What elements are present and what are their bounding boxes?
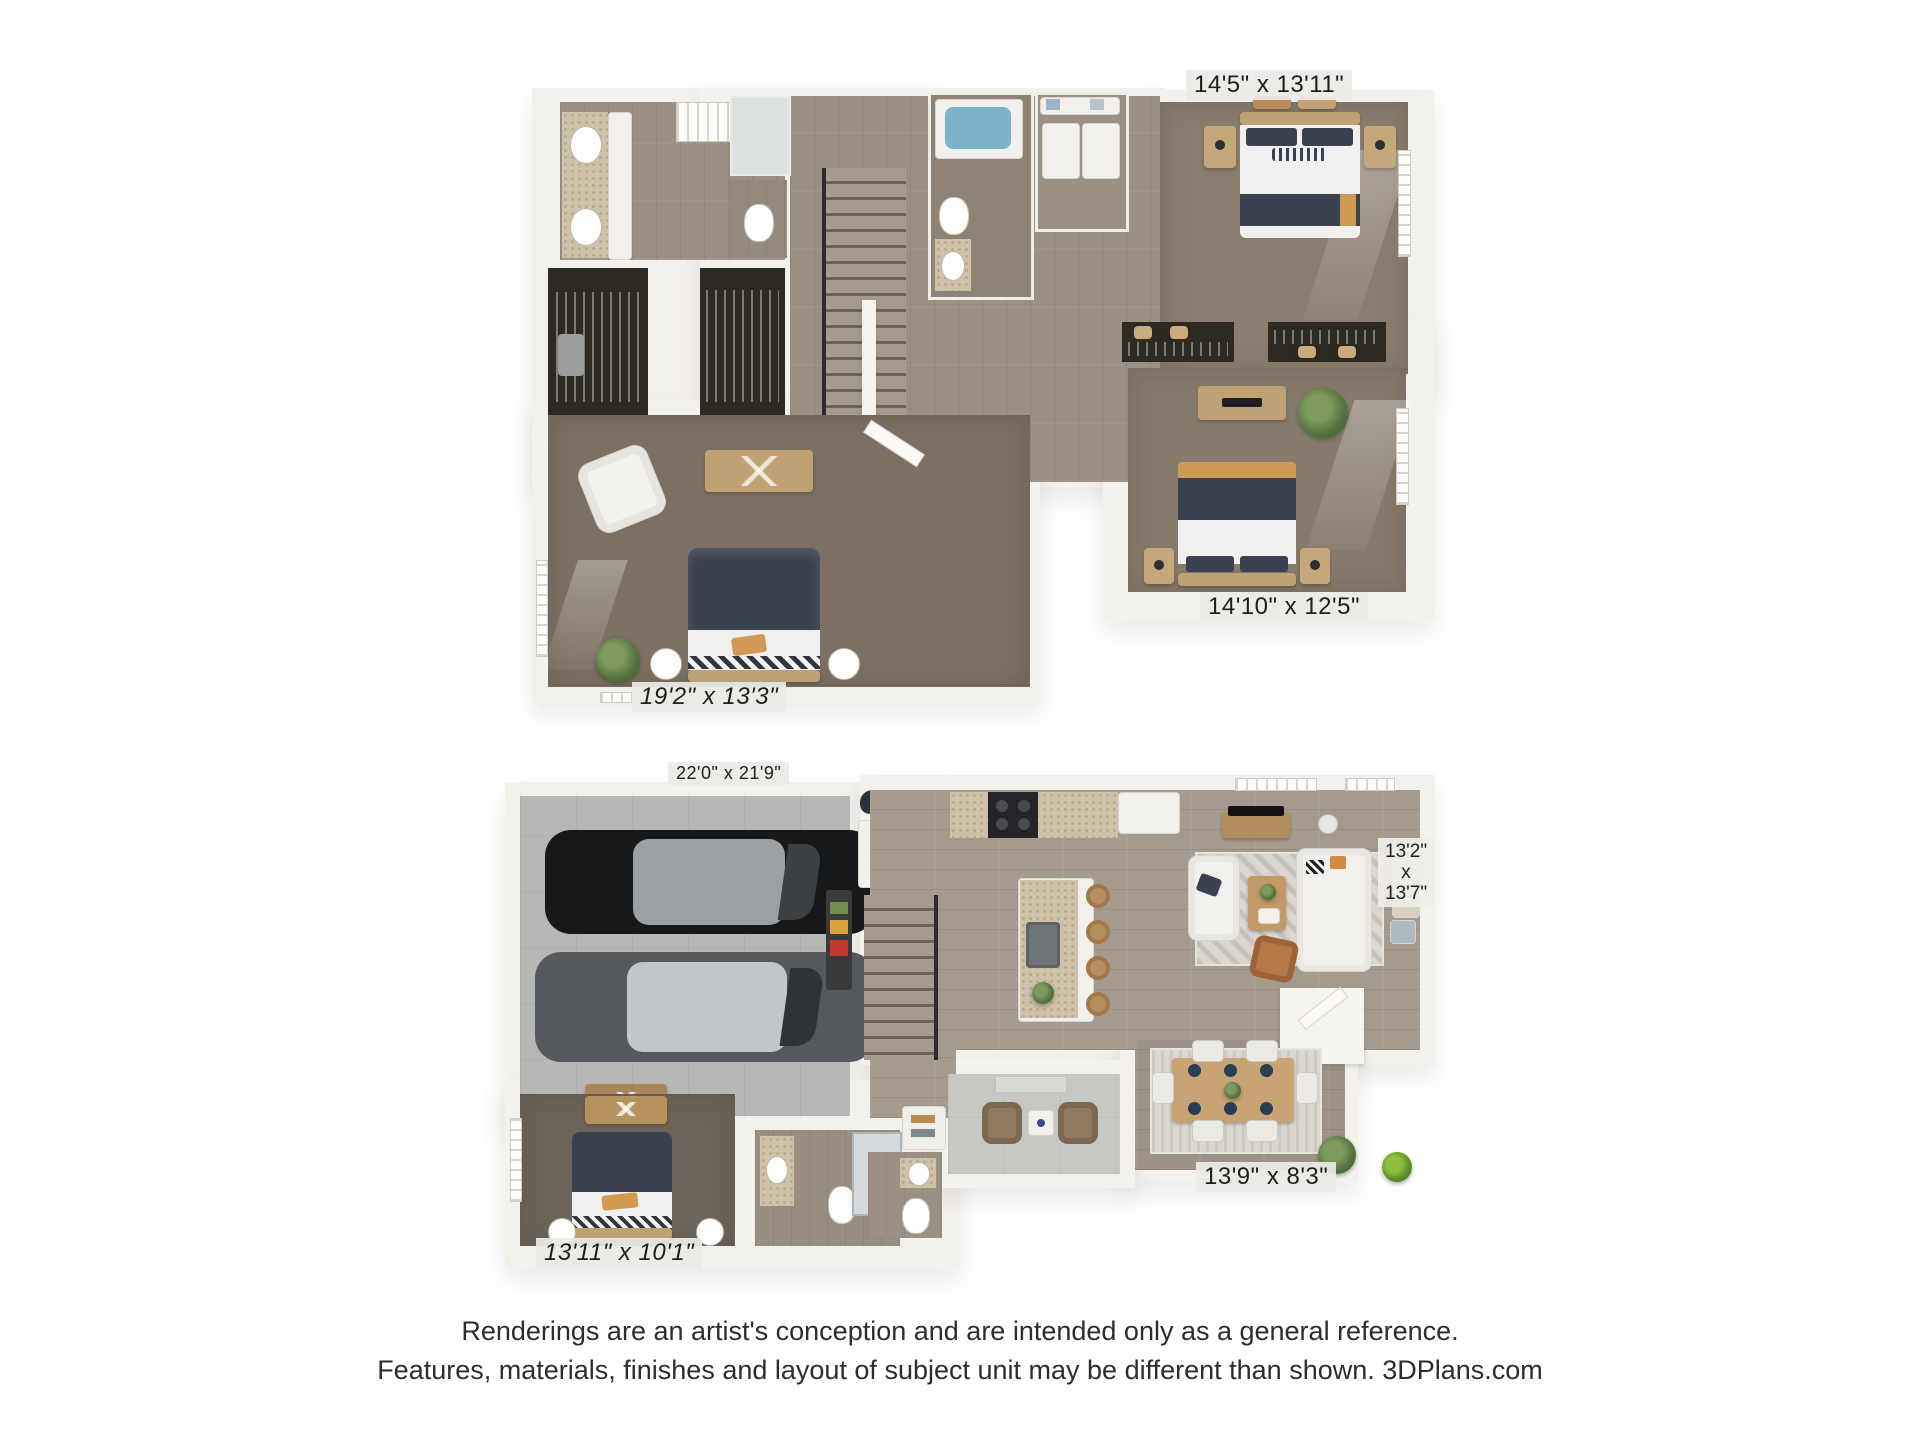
bed2-pillow-right xyxy=(1240,556,1288,572)
island-stool-3 xyxy=(1086,956,1110,980)
bedroom2-dresser xyxy=(1198,386,1286,420)
master-bed-footboard xyxy=(688,670,820,682)
bedroom2-closet-2 xyxy=(1268,322,1386,362)
living-window-top-2 xyxy=(1345,778,1395,791)
burner-1 xyxy=(996,800,1008,812)
car-silver xyxy=(535,952,875,1062)
plate-3 xyxy=(1260,1064,1273,1077)
walkin-closet-2 xyxy=(700,268,785,426)
bedroom2-bed xyxy=(1178,462,1296,586)
closet-strip1-box2 xyxy=(1170,326,1188,339)
burner-3 xyxy=(996,818,1008,830)
zebra-pillow xyxy=(1306,860,1324,874)
closet-strip2-clothes xyxy=(1274,330,1380,344)
master-bed-checker-pillows xyxy=(688,656,820,669)
dining-chair-left xyxy=(1152,1072,1174,1104)
bedroom2-closet-1 xyxy=(1122,322,1234,362)
toilet-upper-wc xyxy=(744,204,774,242)
dim-label-living-x: x xyxy=(1385,862,1427,883)
bathtub-water xyxy=(945,107,1011,149)
pantry-shelf-1 xyxy=(911,1115,935,1123)
garage-shelf-box-yellow xyxy=(830,920,848,934)
bed2-pillow-left xyxy=(1186,556,1234,572)
island-stool-2 xyxy=(1086,920,1110,944)
bed1-accent-pillow xyxy=(1272,148,1328,161)
lower-bed-duvet xyxy=(572,1132,672,1192)
orange-pillow xyxy=(1330,856,1346,869)
dryer xyxy=(1082,123,1120,179)
bath2-toilet xyxy=(902,1198,930,1234)
dining-chair-right xyxy=(1296,1072,1318,1104)
bed1-pillow-right xyxy=(1302,128,1353,146)
dining-chair-bottom-2 xyxy=(1246,1120,1278,1142)
floor-lamp xyxy=(1318,814,1338,834)
stair-railing xyxy=(822,168,826,438)
burner-4 xyxy=(1018,818,1030,830)
master-bed xyxy=(688,548,820,682)
bedroom1-window xyxy=(1398,150,1411,257)
corner-plant xyxy=(1382,1152,1412,1182)
lower-bedroom-bed xyxy=(572,1132,672,1240)
garage-shelf-box-green xyxy=(830,902,848,914)
master-window-left xyxy=(536,560,548,657)
dining-chair-bottom-1 xyxy=(1192,1120,1224,1142)
coffee-table-plant xyxy=(1260,884,1276,900)
bed2-duvet xyxy=(1178,478,1296,520)
bed1-pillow-left xyxy=(1246,128,1297,146)
disclaimer-line-1: Renderings are an artist's conception an… xyxy=(0,1312,1920,1351)
bed1-lamp-right xyxy=(1375,140,1385,150)
living-window-top xyxy=(1235,778,1317,791)
bed1-lamp-left xyxy=(1215,140,1225,150)
bedroom2-plant xyxy=(1298,388,1348,438)
plate-6 xyxy=(1260,1102,1273,1115)
bed2-throw xyxy=(1178,462,1296,478)
tub-bathroom xyxy=(928,92,1034,300)
upper-bathroom-skylight xyxy=(676,102,732,142)
dim-label-lower-bedroom: 13'11" x 10'1" xyxy=(536,1238,702,1268)
bedroom2-window xyxy=(1396,408,1409,505)
lower-dresser-x-detail xyxy=(599,1102,653,1116)
laundry-room xyxy=(1035,92,1129,232)
plate-2 xyxy=(1224,1064,1237,1077)
vanity-sink-2 xyxy=(570,208,602,246)
pantry-shelf-2 xyxy=(911,1129,935,1137)
bath1-sink xyxy=(766,1156,788,1184)
patio-chair-1 xyxy=(982,1102,1022,1144)
dining-table xyxy=(1172,1058,1294,1122)
patio-table-bowl xyxy=(1037,1119,1045,1127)
car-black-roof xyxy=(633,839,785,925)
plate-1 xyxy=(1188,1064,1201,1077)
closet-2-clothes xyxy=(706,290,779,402)
bed1-headboard xyxy=(1240,112,1360,125)
bedroom2-dresser-tv xyxy=(1222,398,1262,407)
plate-4 xyxy=(1188,1102,1201,1115)
television xyxy=(1228,806,1284,816)
bedroom1-bed xyxy=(1240,112,1360,238)
master-side-table-left xyxy=(650,648,682,680)
dining-chair-top-1 xyxy=(1192,1040,1224,1062)
garage-shelf xyxy=(826,890,852,990)
closet-strip1-box1 xyxy=(1134,326,1152,339)
dim-label-garage: 22'0" x 21'9" xyxy=(668,762,789,785)
lower-stair-railing xyxy=(934,895,938,1060)
master-plant xyxy=(596,638,640,682)
kitchen-cabinets-right xyxy=(1118,792,1180,834)
dim-label-living: 13'2" x 13'7" xyxy=(1378,838,1434,907)
walkin-closet-1 xyxy=(548,268,648,426)
master-bed-duvet xyxy=(688,548,820,630)
dim-label-living-line1: 13'2" xyxy=(1385,841,1427,862)
toilet-tub-bath xyxy=(939,197,969,235)
closet-strip2-box2 xyxy=(1338,346,1356,358)
coffee-table xyxy=(1248,876,1286,930)
master-side-table-right xyxy=(828,648,860,680)
leather-accent-chair xyxy=(1248,934,1300,984)
plate-5 xyxy=(1224,1102,1237,1115)
laundry-basket-2 xyxy=(1090,99,1104,110)
disclaimer: Renderings are an artist's conception an… xyxy=(0,1312,1920,1390)
dim-label-bedroom1: 14'5" x 13'11" xyxy=(1186,70,1352,100)
vanity-cabinets xyxy=(608,112,632,260)
laundry-basket-1 xyxy=(1046,99,1060,110)
lower-bedroom-window xyxy=(510,1118,522,1202)
closet-strip2-box1 xyxy=(1298,346,1316,358)
island-plant xyxy=(1032,982,1054,1004)
dim-label-living-line2: 13'7" xyxy=(1385,883,1427,904)
bed2-lamp-left xyxy=(1154,560,1164,570)
patio-doormat xyxy=(995,1076,1067,1093)
kitchen-range xyxy=(988,792,1038,838)
disclaimer-line-2: Features, materials, finishes and layout… xyxy=(0,1351,1920,1390)
sofa-left-module xyxy=(1188,855,1240,941)
bed2-lamp-right xyxy=(1310,560,1320,570)
burner-2 xyxy=(1018,800,1030,812)
leaning-art-3 xyxy=(1390,920,1416,944)
patio-chair-2 xyxy=(1058,1102,1098,1144)
dim-label-dining: 13'9" x 8'3" xyxy=(1196,1162,1336,1192)
lower-staircase xyxy=(864,895,934,1060)
dining-chair-top-2 xyxy=(1246,1040,1278,1062)
garage-shelf-box-red xyxy=(830,940,848,956)
pantry-closet xyxy=(902,1106,946,1150)
suitcase xyxy=(558,334,584,376)
dining-centerpiece xyxy=(1224,1082,1241,1099)
shower-room xyxy=(730,96,791,176)
island-stool-4 xyxy=(1086,992,1110,1016)
kitchen-island xyxy=(1018,878,1092,1020)
dim-label-bedroom2: 14'10" x 12'5" xyxy=(1200,592,1368,622)
master-dresser-x-detail xyxy=(719,456,799,486)
vanity-sink-1 xyxy=(570,126,602,164)
island-sink xyxy=(1026,922,1060,968)
island-stool-1 xyxy=(1086,884,1110,908)
bath2-sink xyxy=(908,1162,930,1186)
lower-bedroom-dresser xyxy=(585,1096,667,1124)
patio-side-table xyxy=(1028,1110,1054,1136)
bed2-headboard xyxy=(1178,573,1296,586)
bed1-throw xyxy=(1340,194,1356,226)
washer xyxy=(1042,123,1080,179)
master-dresser xyxy=(705,450,813,492)
closet-strip1-clothes xyxy=(1128,342,1228,356)
dim-label-master: 19'2" x 13'3" xyxy=(632,682,786,712)
tub-bath-sink xyxy=(941,251,965,281)
floorplan-canvas: 14'5" x 13'11" 14'10" x 12'5" 19'2" x 13… xyxy=(0,0,1920,1440)
car-silver-roof xyxy=(627,962,787,1052)
coffee-table-tray xyxy=(1258,908,1280,924)
lower-bed-checker-pillows xyxy=(572,1216,672,1228)
